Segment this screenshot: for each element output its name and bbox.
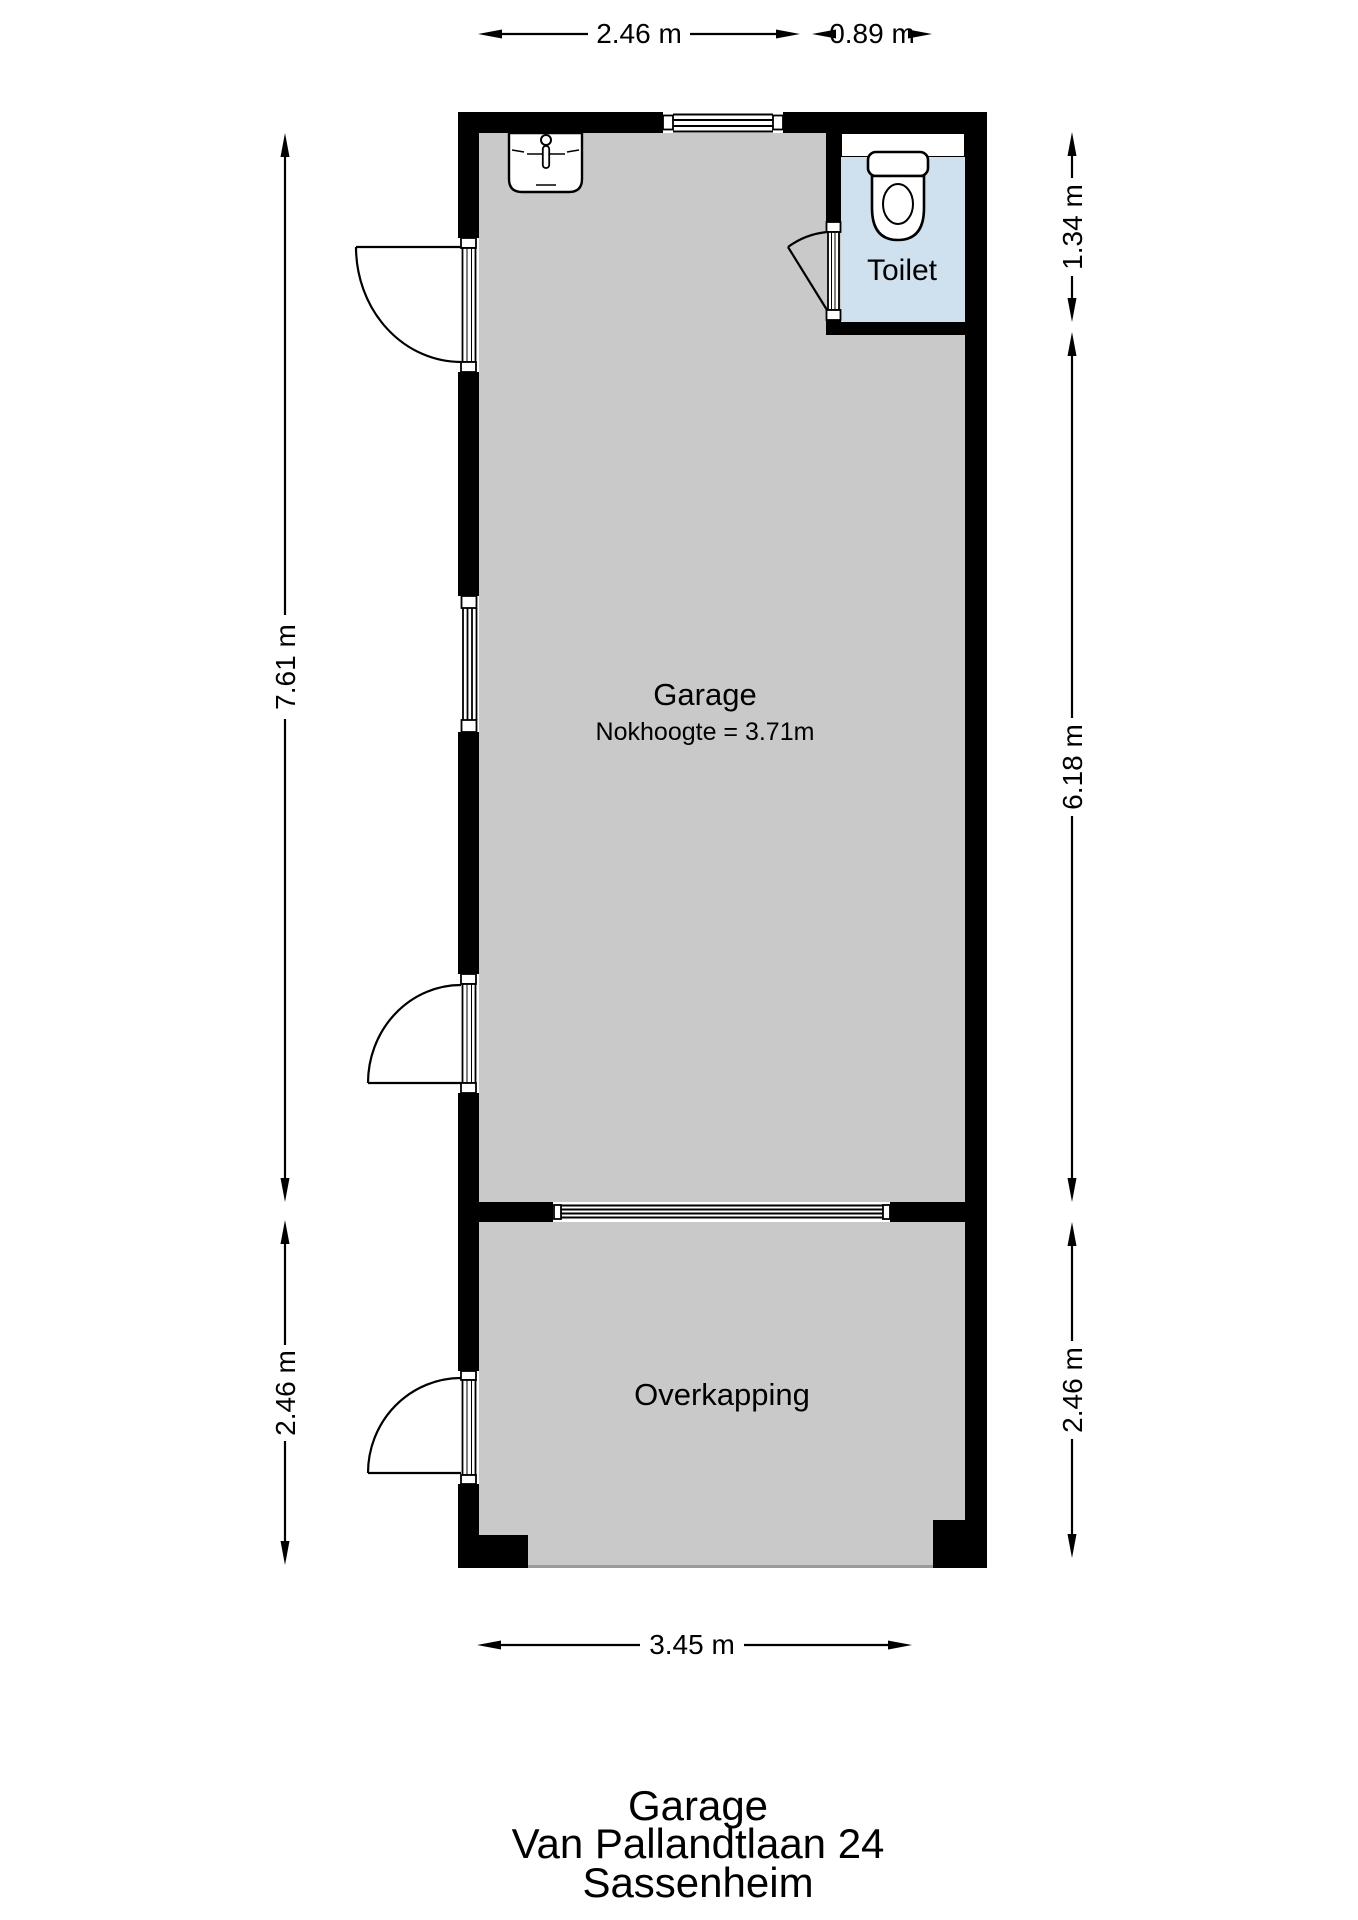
window-cap [554, 1205, 561, 1219]
dim-label: 0.89 m [829, 18, 915, 49]
window-cap [663, 116, 673, 130]
left-window [462, 596, 477, 732]
window-cap [773, 116, 783, 130]
left-wall-seg4 [458, 1093, 479, 1371]
dimension-top-toilet-width: 0.89 m [812, 18, 932, 49]
dimension-bottom-width: 3.45 m [477, 1629, 912, 1660]
toilet-icon [868, 152, 928, 240]
dimension-left-garage-height: 7.61 m [270, 133, 301, 1202]
dimension-right-garage-height: 6.18 m [1057, 332, 1088, 1202]
window-cap [883, 1205, 890, 1219]
window-cap [462, 596, 477, 608]
door-swing-arc [368, 985, 461, 1083]
left-door-top [356, 238, 476, 372]
dim-label: 7.61 m [270, 624, 301, 710]
top-wall-right [783, 112, 987, 133]
dim-label: 2.46 m [596, 18, 682, 49]
dimension-right-overkapping-height: 2.46 m [1057, 1222, 1088, 1558]
dimension-right-toilet-height: 1.34 m [1057, 132, 1088, 322]
bottom-right-corner-block [933, 1520, 965, 1568]
dim-label: 2.46 m [1057, 1347, 1088, 1433]
title-line-3: Sassenheim [582, 1859, 813, 1906]
left-door-middle [368, 974, 476, 1093]
door-swing-arc [368, 1378, 461, 1473]
right-wall [965, 112, 987, 1568]
left-wall-seg3 [458, 732, 479, 974]
divider-wall-left [479, 1202, 553, 1222]
garage-room-label: Garage [653, 677, 756, 712]
dim-label: 3.45 m [649, 1629, 735, 1660]
toilet-room-label: Toilet [867, 254, 938, 287]
door-swing-arc [356, 247, 461, 362]
sink-icon [509, 133, 582, 192]
top-window [663, 115, 783, 132]
toilet-partition-upper [826, 133, 841, 222]
floors [479, 133, 965, 1568]
bottom-left-corner-stub [479, 1535, 528, 1568]
left-wall-seg1 [458, 112, 479, 238]
left-wall-seg5 [458, 1484, 479, 1568]
title-block: Garage Van Pallandtlaan 24 Sassenheim [512, 1782, 885, 1906]
toilet-bottom-wall [826, 322, 965, 335]
garage-room-note: Nokhoogte = 3.71m [596, 718, 815, 746]
dim-label: 2.46 m [270, 1350, 301, 1436]
dim-label: 1.34 m [1057, 184, 1088, 270]
divider-wall-right [890, 1202, 965, 1222]
divider-window [554, 1205, 890, 1219]
floor-plan: Garage Nokhoogte = 3.71m Toilet Overkapp… [0, 0, 1358, 1920]
window-cap [462, 720, 477, 732]
left-wall-seg2 [458, 372, 479, 596]
overkapping-door [368, 1371, 476, 1484]
overkapping-room-label: Overkapping [634, 1377, 810, 1412]
floorplan-page: Garage Nokhoogte = 3.71m Toilet Overkapp… [0, 0, 1358, 1920]
top-wall-left [458, 112, 663, 133]
dim-label: 6.18 m [1057, 724, 1088, 810]
dimension-top-garage-width: 2.46 m [478, 18, 800, 49]
dimension-left-overkapping-height: 2.46 m [270, 1220, 301, 1565]
